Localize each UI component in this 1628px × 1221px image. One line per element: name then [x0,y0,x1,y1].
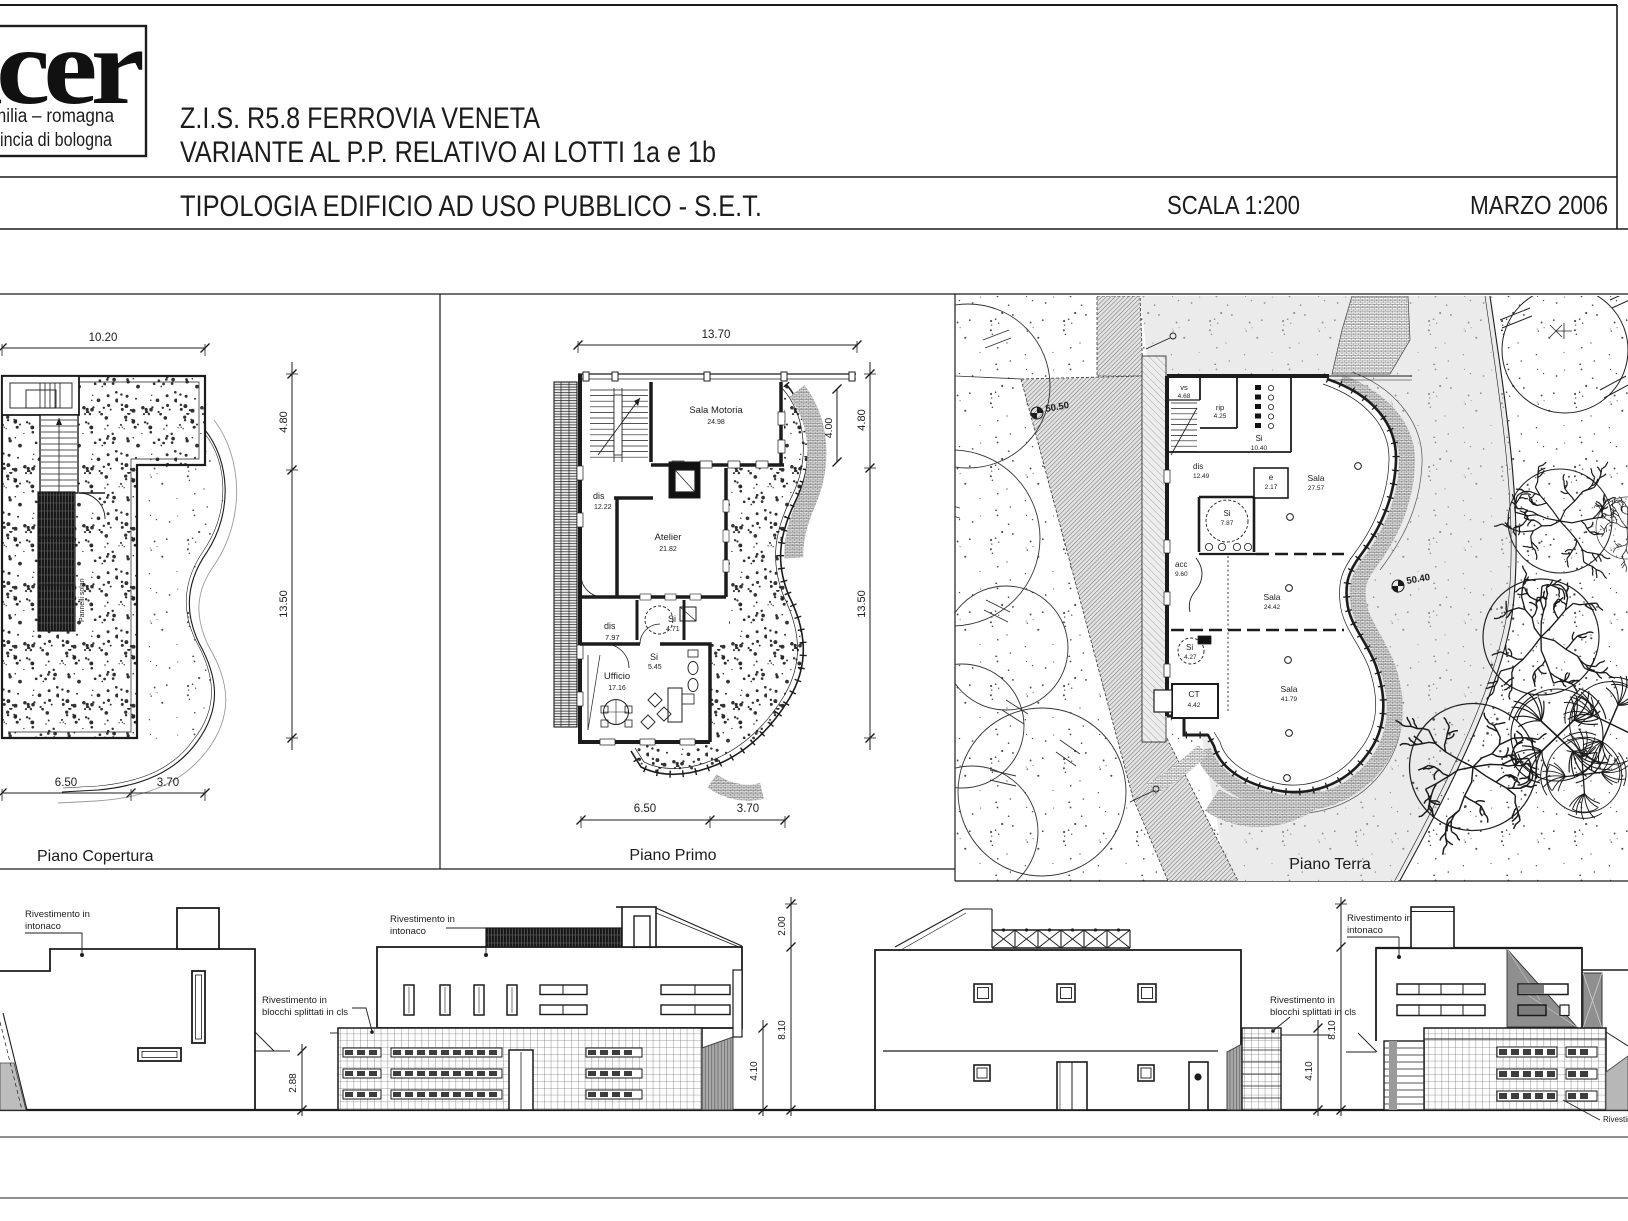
svg-text:27.57: 27.57 [1308,485,1325,492]
svg-text:acc: acc [1175,560,1187,569]
svg-text:rip: rip [1216,403,1224,412]
svg-text:Piano Primo: Piano Primo [629,847,716,864]
svg-text:4.27: 4.27 [1184,654,1197,661]
svg-text:Piano Terra: Piano Terra [1289,856,1371,873]
svg-text:dis: dis [593,491,605,501]
svg-text:4.80: 4.80 [278,411,290,432]
svg-text:Rivestimento in: Rivestimento in [1347,913,1412,924]
svg-text:Z.I.S. R5.8 FERROVIA VENETA: Z.I.S. R5.8 FERROVIA VENETA [180,102,540,135]
svg-text:4.25: 4.25 [1214,413,1227,420]
svg-text:Rivestimento in: Rivestimento in [25,909,90,920]
svg-text:blocchi splittati in cls: blocchi splittati in cls [262,1007,348,1018]
svg-text:Rivestimento in: Rivestimento in [390,914,455,925]
svg-text:4.10: 4.10 [749,1061,760,1081]
svg-text:4.42: 4.42 [1188,702,1201,709]
svg-text:24.98: 24.98 [707,419,725,426]
svg-text:Rivestimento in: Rivestimento in [262,995,327,1006]
svg-text:4.80: 4.80 [856,409,868,430]
svg-text:milia – romagna: milia – romagna [0,106,114,127]
svg-text:vs: vs [1180,383,1188,392]
svg-text:17.16: 17.16 [608,685,626,692]
svg-text:13.70: 13.70 [702,329,731,341]
svg-text:e: e [1269,473,1274,482]
svg-text:Si: Si [650,652,658,662]
svg-text:Si: Si [1223,509,1230,518]
svg-text:2.17: 2.17 [1265,484,1278,491]
svg-text:5.45: 5.45 [648,664,662,671]
svg-text:12.49: 12.49 [1193,473,1210,480]
svg-text:6.50: 6.50 [634,803,656,815]
svg-text:TIPOLOGIA EDIFICIO AD USO PUBB: TIPOLOGIA EDIFICIO AD USO PUBBLICO - S.E… [180,190,762,223]
svg-text:4.71: 4.71 [666,626,680,633]
svg-text:Rivestimento in: Rivestimento in [1270,995,1335,1006]
svg-text:2.88: 2.88 [288,1073,299,1093]
svg-text:13.50: 13.50 [278,590,290,618]
svg-text:SCALA 1:200: SCALA 1:200 [1167,190,1300,220]
svg-text:9.60: 9.60 [1175,571,1188,578]
svg-text:MARZO 2006: MARZO 2006 [1470,190,1608,220]
svg-text:21.82: 21.82 [659,546,677,553]
svg-text:24.42: 24.42 [1264,604,1281,611]
svg-text:VARIANTE AL P.P. RELATIVO AI L: VARIANTE AL P.P. RELATIVO AI LOTTI 1a e … [180,136,716,169]
svg-text:3.70: 3.70 [157,777,179,789]
svg-text:Atelier: Atelier [655,532,682,543]
svg-text:4.68: 4.68 [1178,393,1191,400]
svg-text:Si: Si [668,614,676,624]
svg-text:vincia di bologna: vincia di bologna [0,130,112,151]
svg-text:Sala: Sala [1280,684,1297,694]
svg-text:dis: dis [1193,462,1203,471]
svg-text:13.50: 13.50 [856,590,868,618]
svg-text:Piano Copertura: Piano Copertura [37,848,154,865]
svg-text:7.97: 7.97 [605,633,620,642]
svg-text:Sala: Sala [1263,592,1280,602]
svg-text:dis: dis [604,621,616,631]
svg-text:blocchi splittati in cls: blocchi splittati in cls [1270,1007,1356,1018]
svg-text:Rivestim.: Rivestim. [1603,1115,1628,1124]
svg-text:10.40: 10.40 [1251,445,1268,452]
svg-text:Sala: Sala [1307,473,1324,483]
svg-text:intonaco: intonaco [25,921,61,932]
svg-text:7.87: 7.87 [1221,520,1234,527]
svg-text:8.10: 8.10 [1327,1020,1338,1040]
svg-text:Ufficio: Ufficio [604,671,630,682]
svg-text:intonaco: intonaco [390,926,426,937]
svg-text:3.70: 3.70 [737,803,759,815]
svg-text:6.50: 6.50 [55,777,77,789]
svg-text:Si: Si [1186,643,1193,652]
svg-text:10.20: 10.20 [89,332,118,344]
svg-text:Sala Motoria: Sala Motoria [689,405,743,416]
svg-text:intonaco: intonaco [1347,925,1383,936]
svg-text:Pannelli solari: Pannelli solari [79,578,86,622]
svg-text:12.22: 12.22 [594,504,612,511]
svg-text:4.10: 4.10 [1304,1061,1315,1081]
svg-text:2.00: 2.00 [777,916,788,936]
svg-text:4.00: 4.00 [823,418,835,439]
svg-text:8.10: 8.10 [777,1020,788,1040]
svg-text:CT: CT [1188,689,1199,699]
svg-text:41.79: 41.79 [1281,696,1298,703]
svg-text:Si: Si [1255,434,1262,443]
